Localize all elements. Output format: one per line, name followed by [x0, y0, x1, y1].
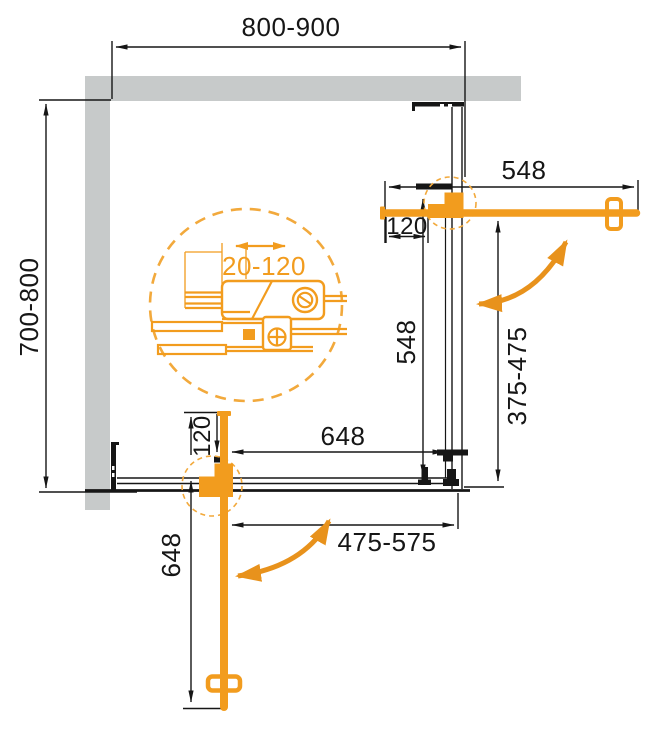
dim-right-door-closed-label: 548 [393, 320, 419, 365]
dim-pivot-offset-right-label: 120 [386, 215, 428, 239]
drawing-canvas [0, 0, 661, 732]
swing-arrow-bottom-door-icon [238, 521, 329, 576]
wall-top [85, 76, 521, 101]
dim-left-depth-label: 700-800 [16, 258, 42, 357]
glass-panel-bottom [117, 478, 456, 484]
glass-panel-right [452, 107, 462, 489]
dim-bottom-panel-label: 648 [321, 423, 366, 449]
corner-connector [418, 450, 468, 487]
technical-drawing: 800-900 700-800 548 120 548 375-475 648 … [0, 0, 661, 732]
dim-opening-right-label: 375-475 [504, 327, 530, 426]
wall-left [85, 76, 110, 510]
dim-bottom-door-length-label: 648 [158, 533, 184, 578]
dim-adjustment-range-label: 20-120 [222, 253, 306, 279]
detail-circle [150, 209, 347, 401]
wall-profile-top [412, 102, 464, 111]
wall-profile-left [111, 442, 119, 492]
swing-arrow-right-door-icon [479, 242, 566, 304]
pivot-block-top [428, 193, 464, 219]
dimension-lines [39, 41, 638, 709]
dim-opening-bottom-label: 475-575 [338, 529, 437, 555]
pivot-block-bottom [199, 464, 233, 498]
dim-pivot-offset-bottom-label: 120 [191, 415, 215, 457]
dim-top-width-label: 800-900 [242, 14, 341, 40]
dim-right-door-width-label: 548 [502, 157, 547, 183]
bracket-top [416, 184, 452, 190]
